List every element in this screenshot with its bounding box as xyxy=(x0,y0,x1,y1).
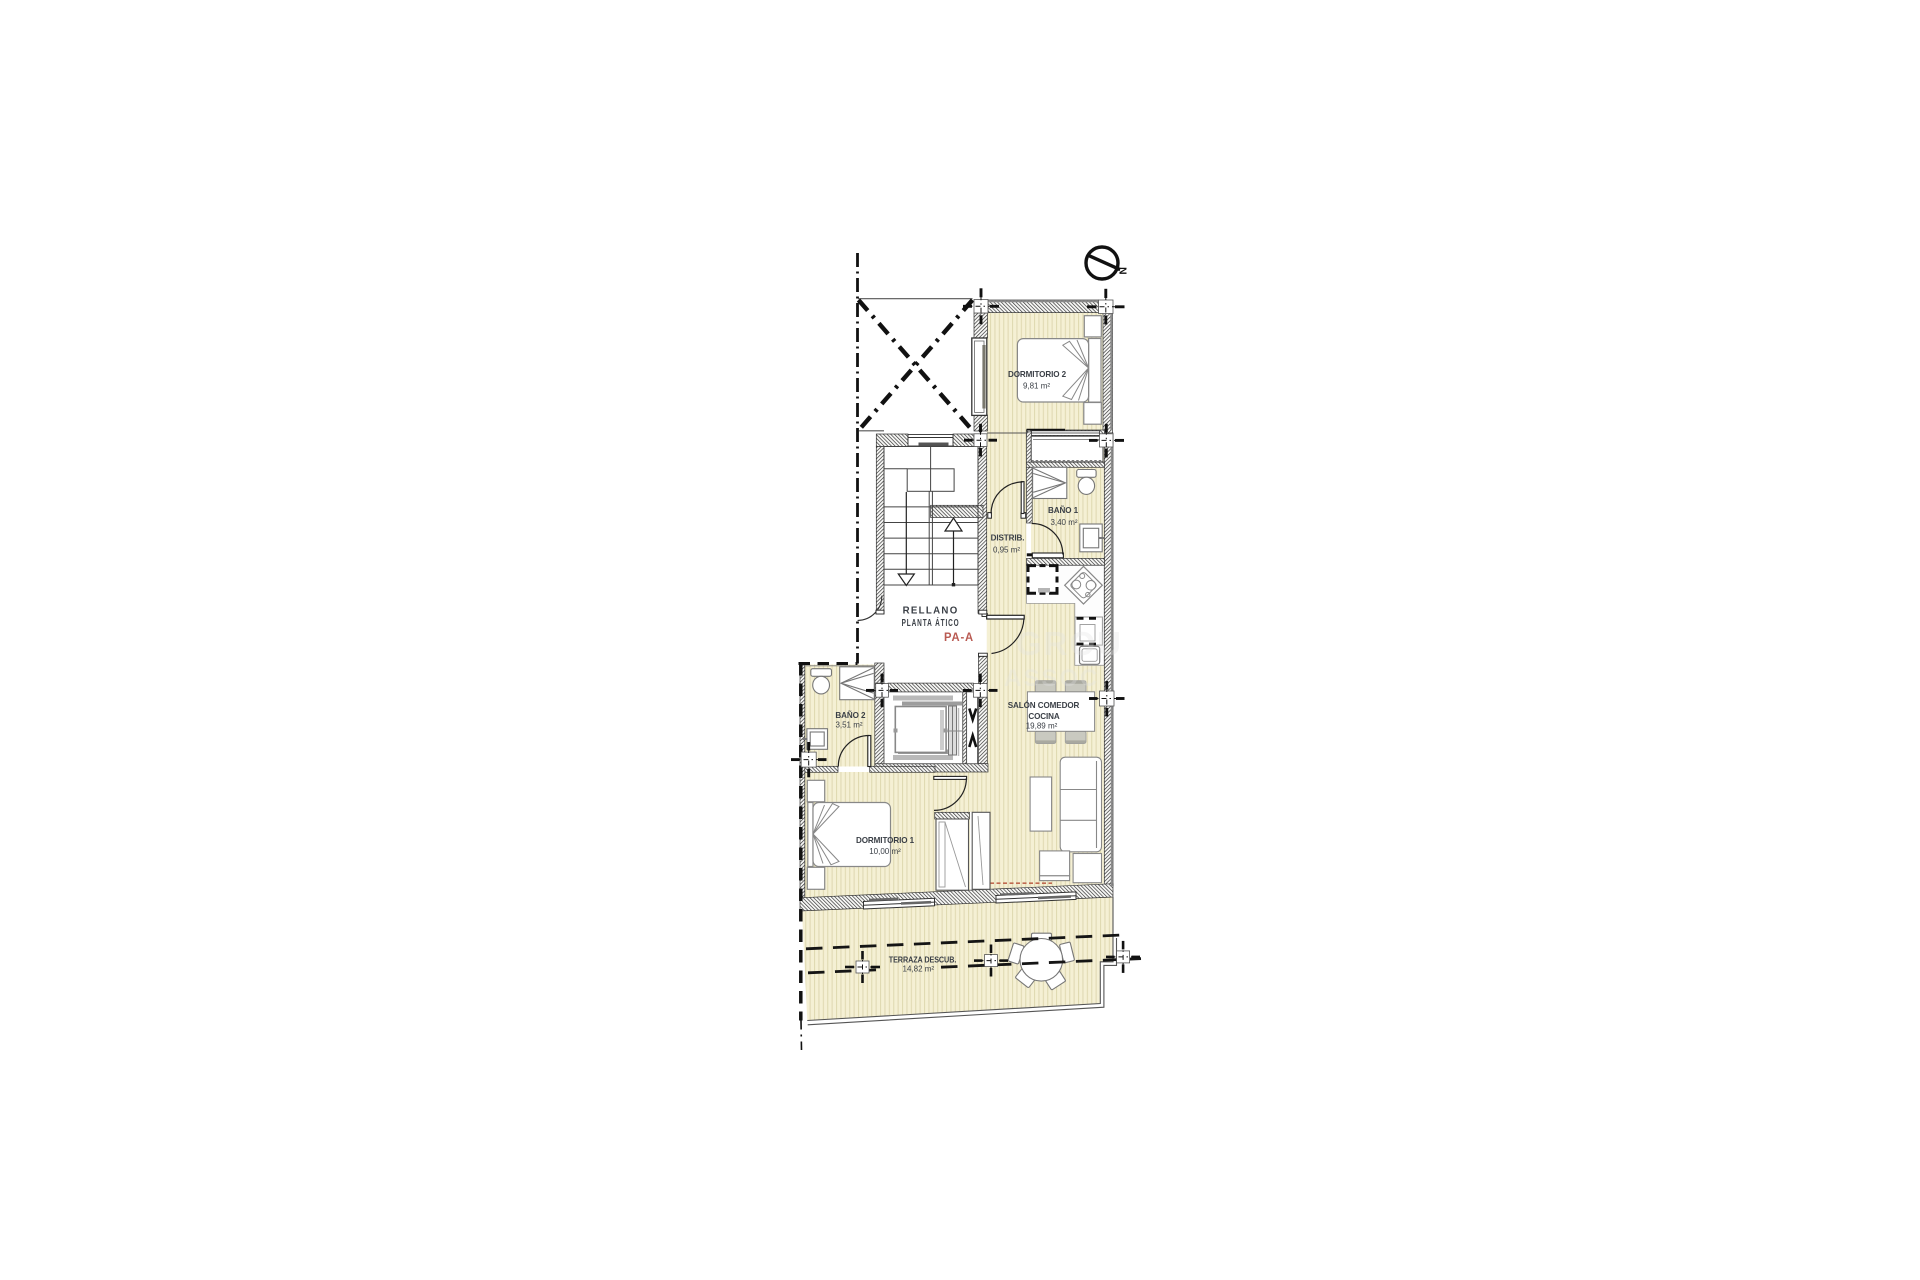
svg-text:TERRAZA DESCUB.: TERRAZA DESCUB. xyxy=(889,956,957,965)
svg-text:DORMITORIO 2: DORMITORIO 2 xyxy=(1008,370,1067,379)
svg-text:BAÑO 1: BAÑO 1 xyxy=(1048,506,1079,515)
svg-text:ASSOC: ASSOC xyxy=(1004,665,1099,692)
svg-text:3,51 m²: 3,51 m² xyxy=(835,721,862,730)
svg-text:19,89 m²: 19,89 m² xyxy=(1026,722,1058,731)
svg-text:DISTRIB.: DISTRIB. xyxy=(991,534,1025,543)
svg-text:PA-A: PA-A xyxy=(944,630,974,644)
svg-text:COCINA: COCINA xyxy=(1028,712,1060,721)
svg-text:3,40 m²: 3,40 m² xyxy=(1050,518,1077,527)
svg-text:SALÓN COMEDOR: SALÓN COMEDOR xyxy=(1008,701,1080,710)
svg-text:PLANTA ÁTICO: PLANTA ÁTICO xyxy=(902,616,960,629)
svg-text:RELLANO: RELLANO xyxy=(903,606,959,617)
svg-text:N: N xyxy=(1117,267,1129,275)
svg-text:GROU: GROU xyxy=(1016,625,1123,662)
svg-text:DORMITORIO 1: DORMITORIO 1 xyxy=(856,836,915,845)
svg-text:9,81 m²: 9,81 m² xyxy=(1023,382,1050,391)
svg-text:BAÑO 2: BAÑO 2 xyxy=(835,711,866,720)
svg-text:10,00 m²: 10,00 m² xyxy=(869,847,901,856)
svg-text:14,82 m²: 14,82 m² xyxy=(903,965,935,974)
svg-text:0,95 m²: 0,95 m² xyxy=(993,546,1020,555)
